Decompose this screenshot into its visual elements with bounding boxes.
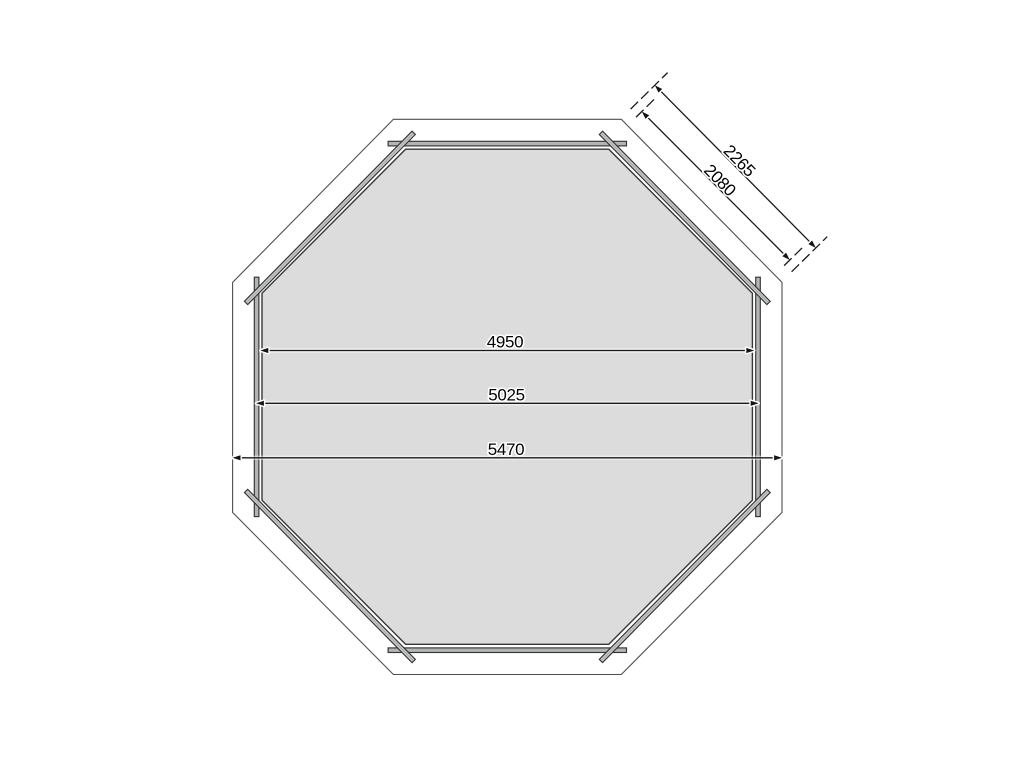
svg-text:5470: 5470 xyxy=(488,440,525,459)
svg-text:4950: 4950 xyxy=(487,333,524,352)
svg-text:5025: 5025 xyxy=(488,385,525,404)
